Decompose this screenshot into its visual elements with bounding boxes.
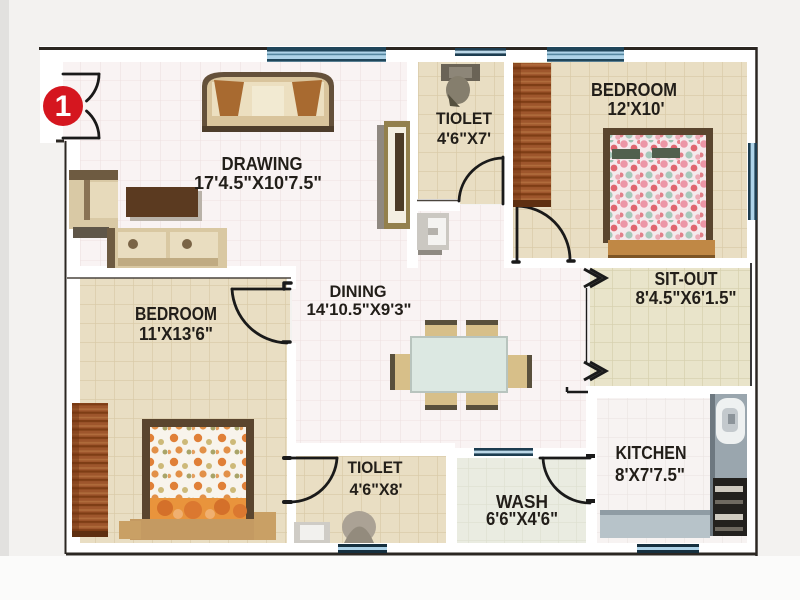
svg-text:SIT-OUT: SIT-OUT [655,269,718,289]
svg-text:8'4.5"X6'1.5": 8'4.5"X6'1.5" [636,288,737,308]
svg-text:KITCHEN: KITCHEN [616,443,687,463]
svg-text:11'X13'6": 11'X13'6" [139,324,213,344]
svg-text:TIOLET: TIOLET [436,109,493,128]
svg-text:8'X7'7.5": 8'X7'7.5" [615,465,685,485]
svg-text:6'6"X4'6": 6'6"X4'6" [486,509,558,529]
svg-text:17'4.5"X10'7.5": 17'4.5"X10'7.5" [194,173,322,193]
svg-text:DINING: DINING [330,282,387,301]
svg-text:4'6"X8': 4'6"X8' [350,480,403,499]
svg-text:TIOLET: TIOLET [348,458,404,477]
svg-text:1: 1 [55,90,72,123]
svg-text:12'X10': 12'X10' [608,99,665,119]
svg-text:BEDROOM: BEDROOM [591,80,677,100]
svg-text:4'6"X7': 4'6"X7' [437,129,491,148]
svg-text:DRAWING: DRAWING [222,154,303,174]
svg-text:BEDROOM: BEDROOM [135,304,217,324]
svg-text:14'10.5"X9'3": 14'10.5"X9'3" [307,300,412,319]
